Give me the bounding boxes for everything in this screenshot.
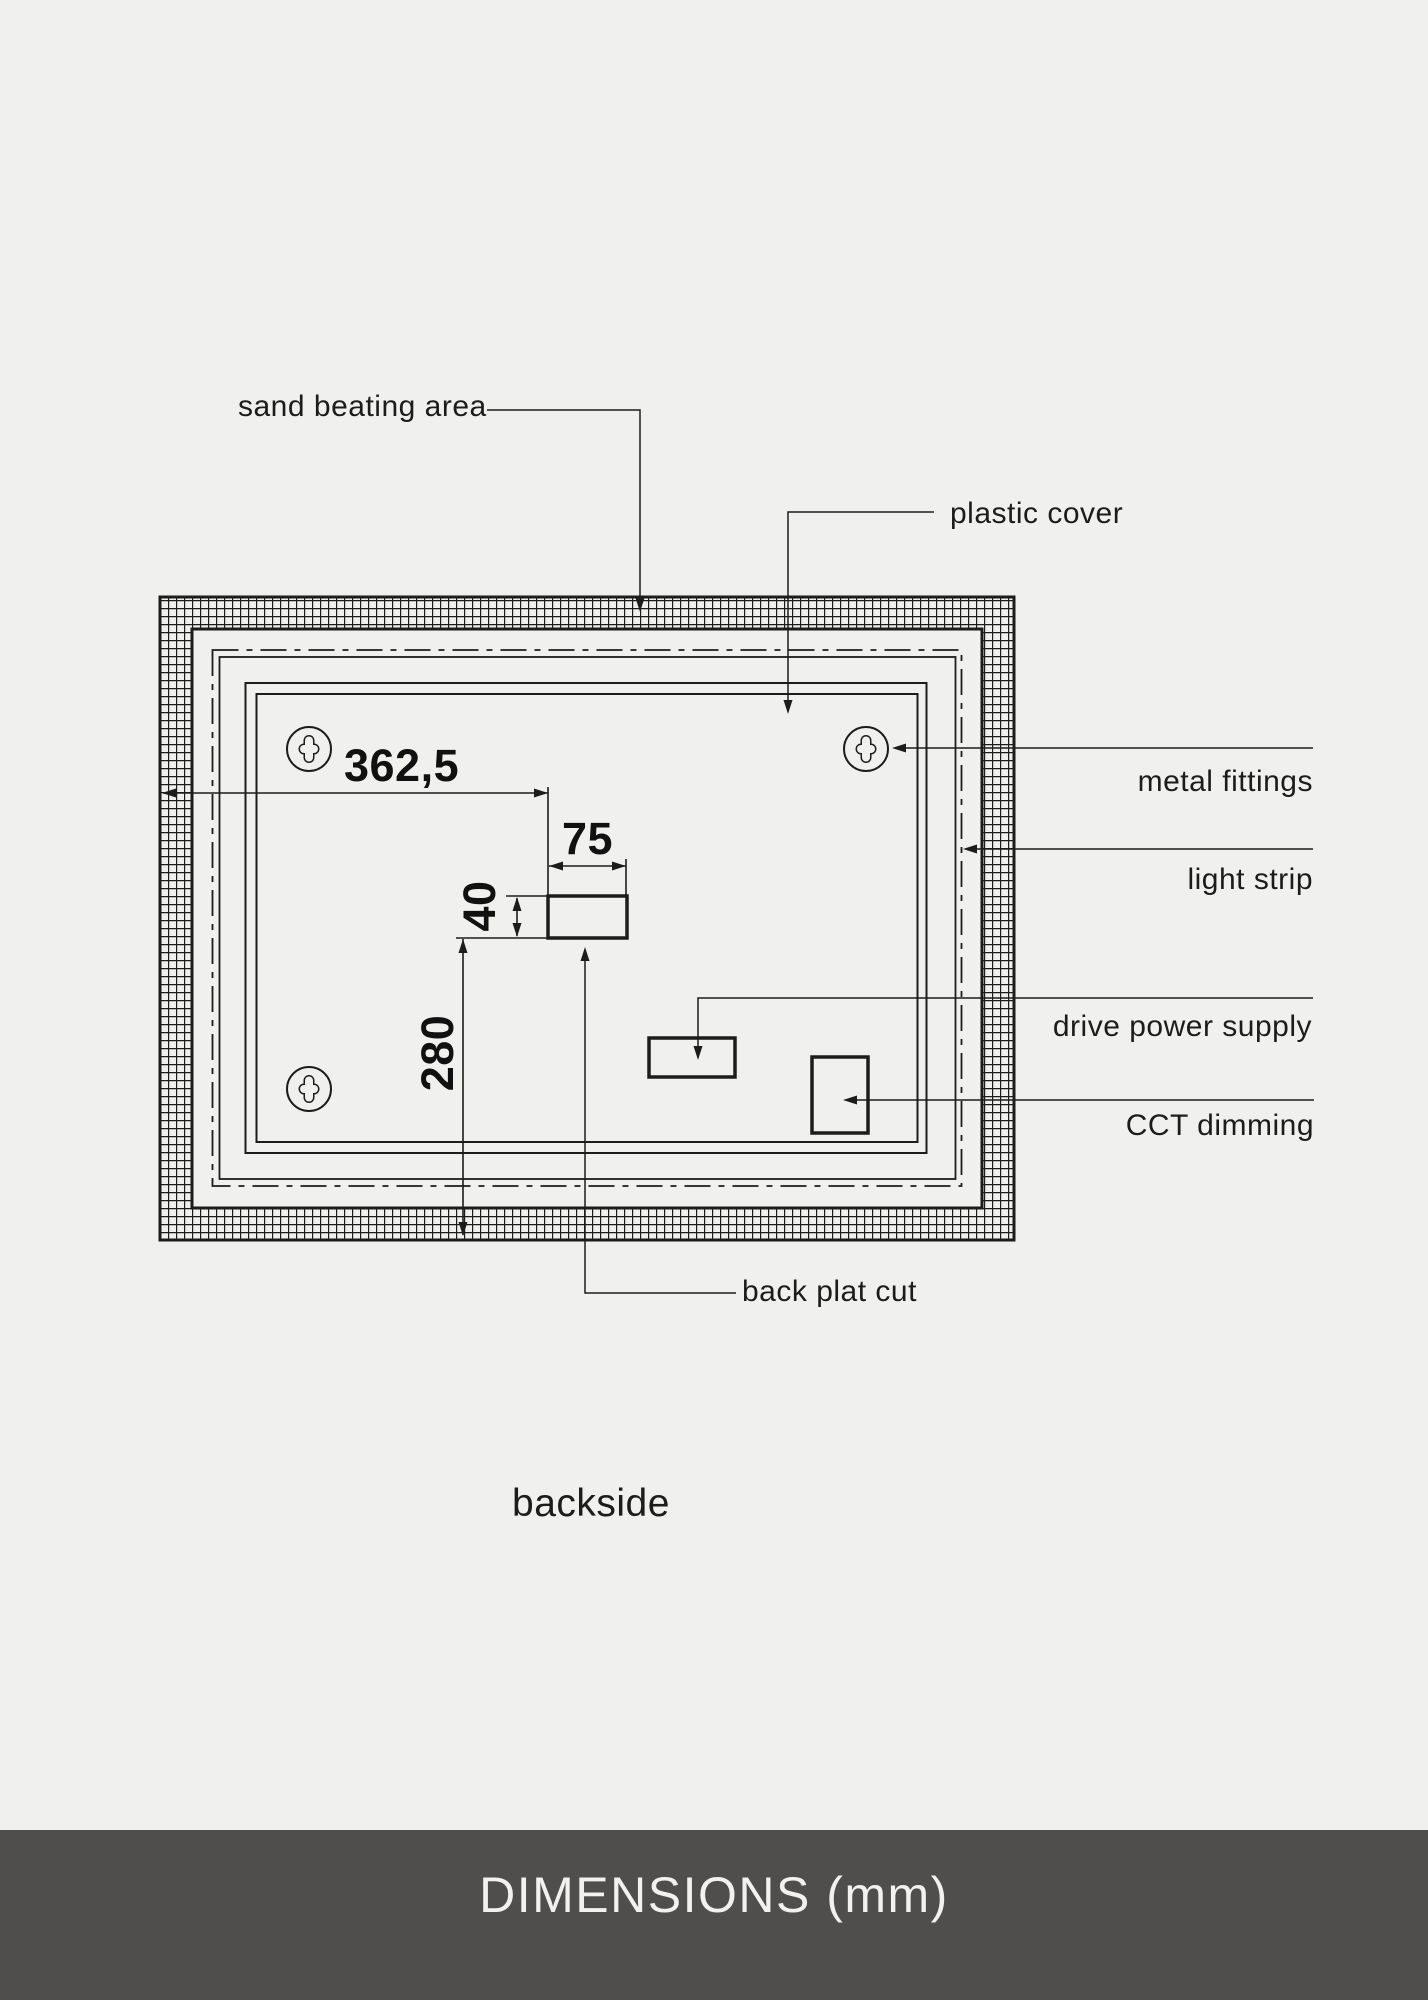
technical-drawing <box>0 0 1428 2000</box>
screw-icon-top-right <box>844 727 888 771</box>
screw-icon-bottom-left <box>287 1067 331 1111</box>
dimension-40-value: 40 <box>453 866 505 946</box>
cct-dimming-label: CCT dimming <box>1126 1109 1314 1142</box>
footer-band: DIMENSIONS (mm) <box>0 1830 1428 2000</box>
drive-power-supply-box <box>649 1038 735 1077</box>
dimension-75-value: 75 <box>548 816 627 861</box>
dimension-280-value: 280 <box>411 998 463 1108</box>
back-plat-cut-label: back plat cut <box>742 1275 917 1308</box>
plastic-cover-label: plastic cover <box>950 497 1123 530</box>
screw-icon-top-left <box>287 727 331 771</box>
drive-power-supply-label: drive power supply <box>1053 1010 1312 1043</box>
metal-fittings-label: metal fittings <box>1138 765 1313 798</box>
plastic-cover-outline <box>220 657 956 1179</box>
backside-caption: backside <box>512 1483 670 1526</box>
back-plate-cutout <box>548 896 627 938</box>
sand-beating-area-label: sand beating area <box>238 390 487 423</box>
light-strip-label: light strip <box>1187 863 1313 896</box>
cct-dimming-box <box>812 1057 868 1133</box>
footer-title: DIMENSIONS (mm) <box>479 1866 949 1924</box>
dimension-362-5-value: 362,5 <box>344 743 459 788</box>
diagram-page: sand beating area plastic cover metal fi… <box>0 0 1428 2000</box>
